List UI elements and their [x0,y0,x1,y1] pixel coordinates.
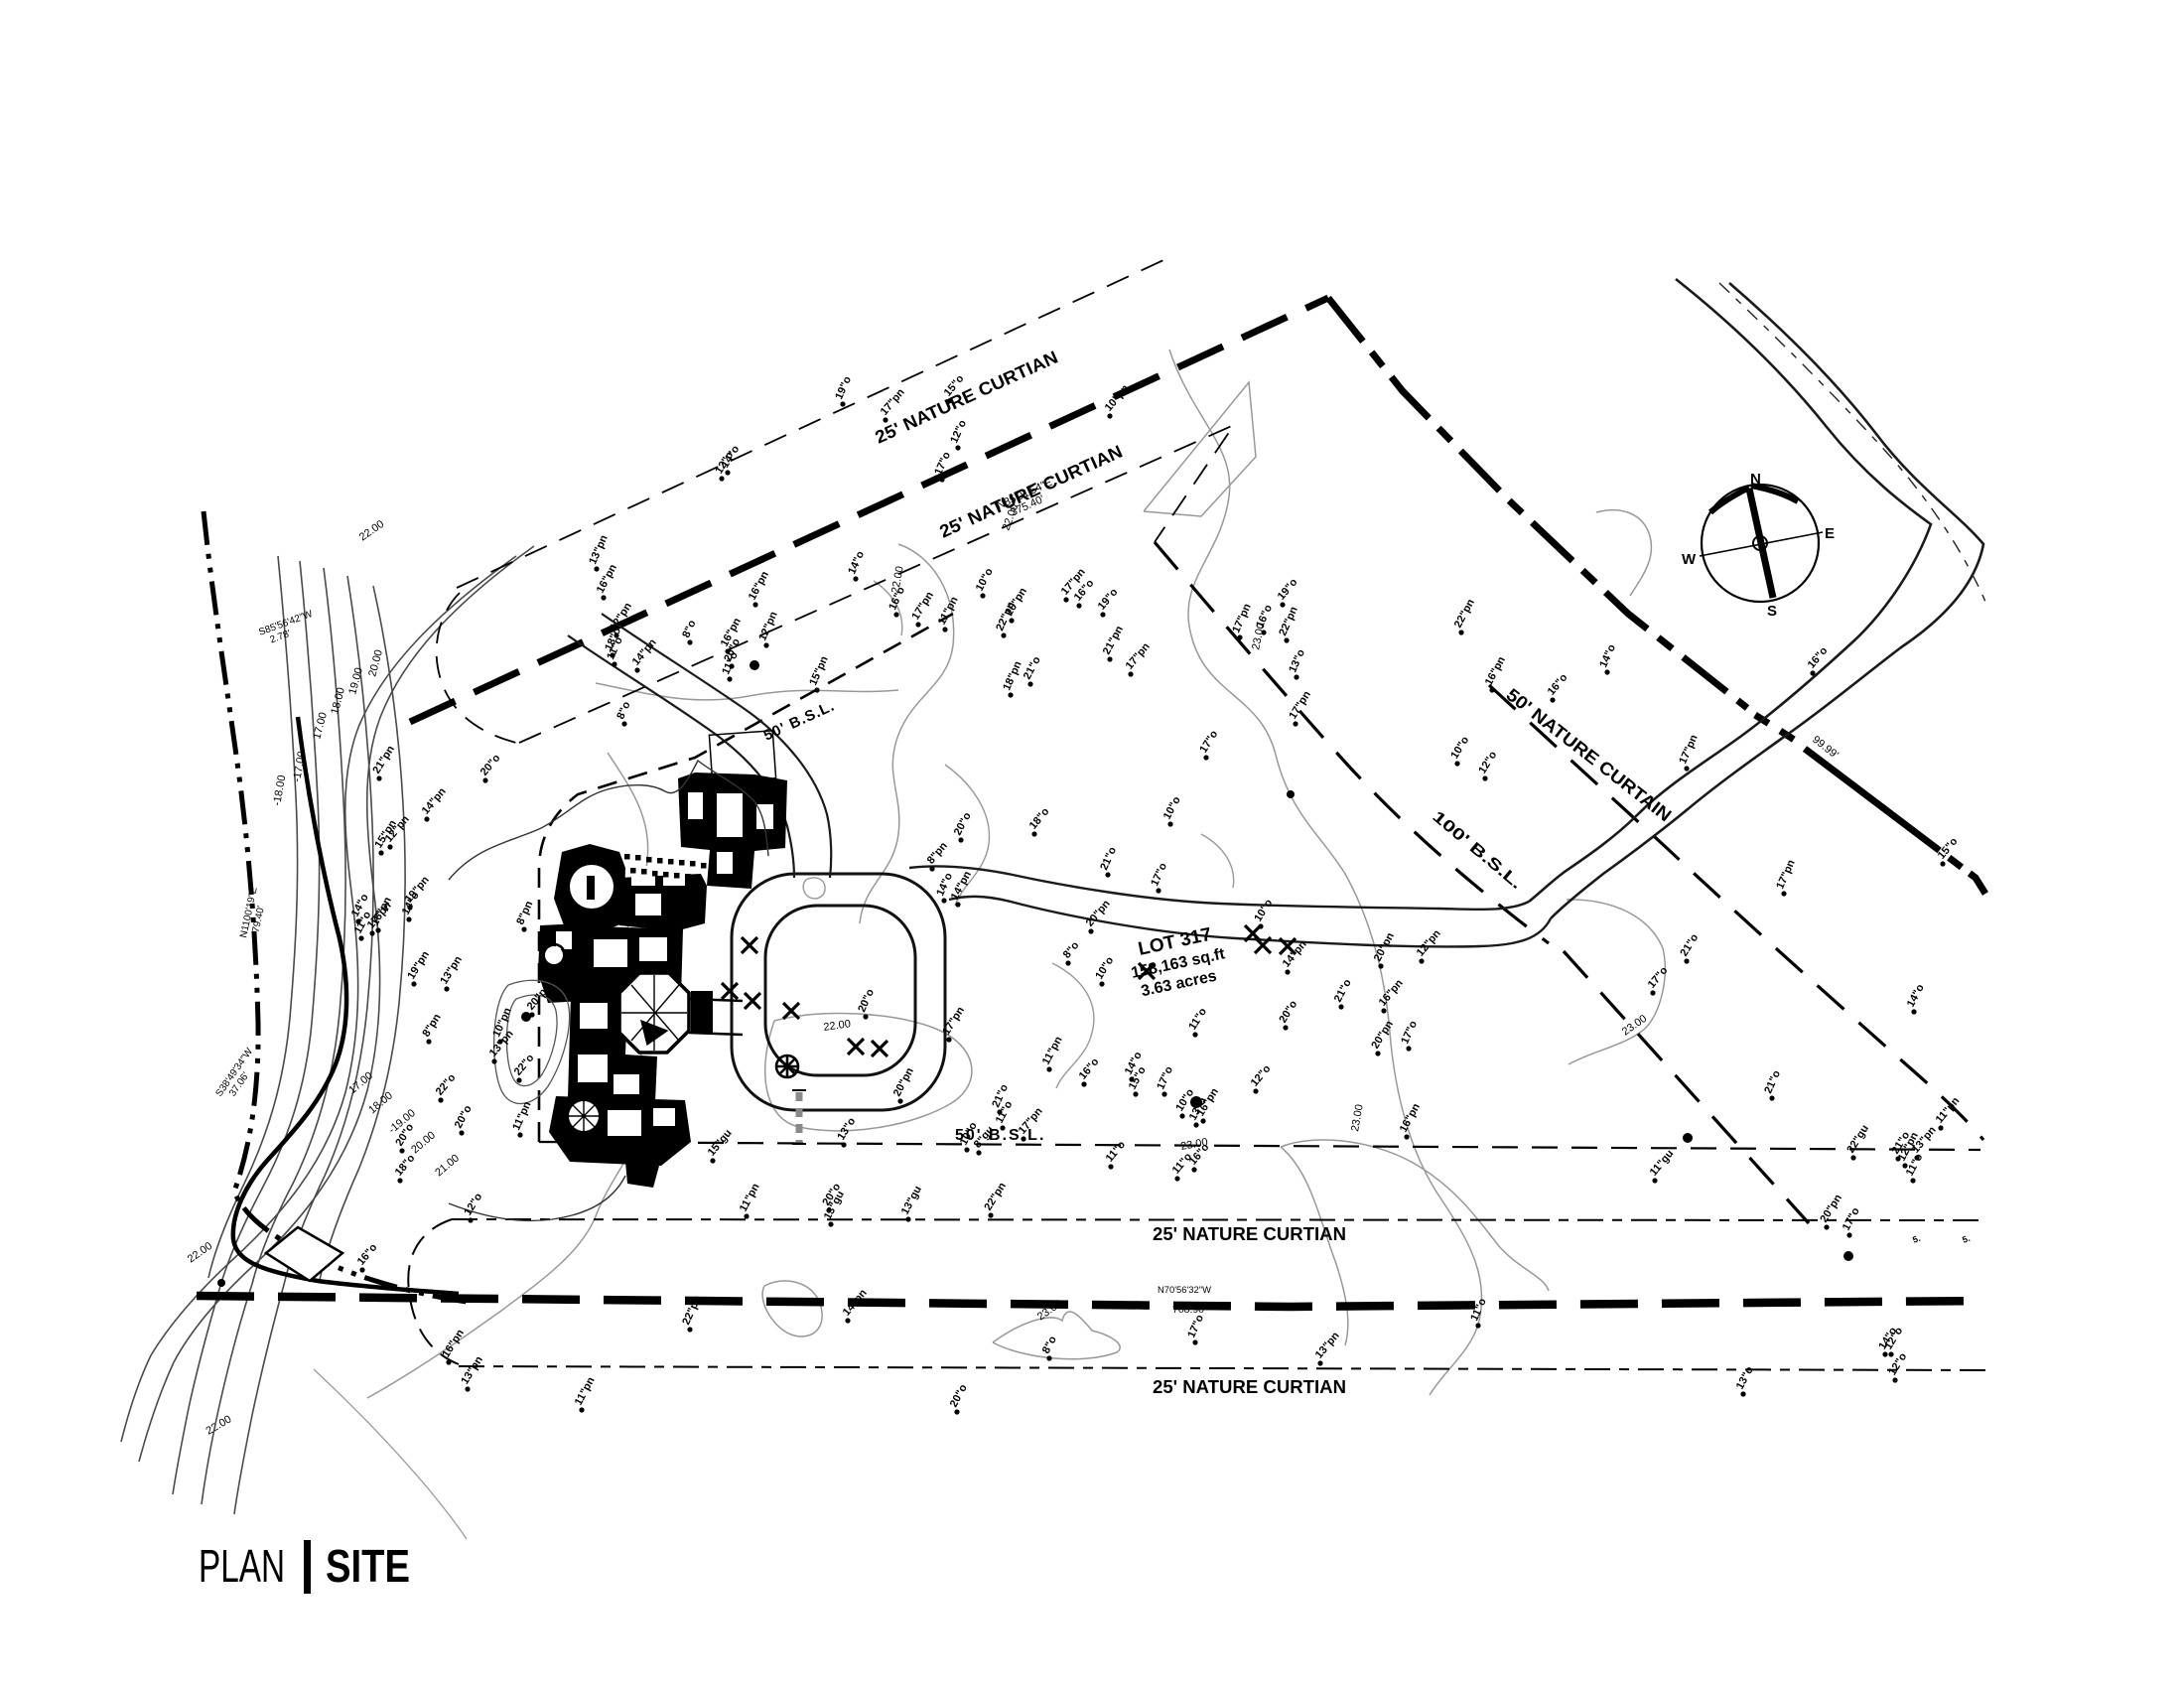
svg-text:S: S [1767,603,1777,620]
svg-text:708.90': 708.90' [1172,1305,1206,1315]
svg-text:SITE: SITE [326,1540,410,1592]
svg-text:N70'56'32"W: N70'56'32"W [1158,1285,1212,1295]
svg-text:N: N [1750,471,1761,488]
svg-text:W: W [1682,551,1697,568]
svg-text:50' B.S.L.: 50' B.S.L. [955,1127,1045,1144]
svg-text:25' NATURE CURTIAN: 25' NATURE CURTIAN [1153,1377,1346,1397]
svg-text:PLAN: PLAN [199,1540,285,1592]
svg-text:E: E [1825,525,1835,542]
svg-text:25' NATURE CURTIAN: 25' NATURE CURTIAN [1153,1224,1346,1244]
